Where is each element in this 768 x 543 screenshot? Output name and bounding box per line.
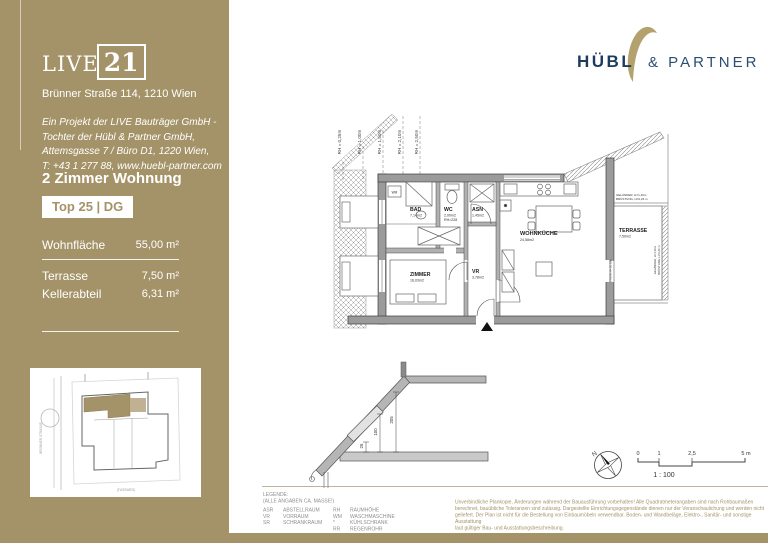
area-row-wohnflaeche: Wohnfläche 55,00 m² (42, 236, 179, 254)
room-label-wc: WC (444, 207, 453, 213)
dining-table (536, 206, 572, 232)
disclaimer-line: laut gültiger Bau- und Ausstattungsbesch… (455, 525, 767, 532)
roof-section-detail: 25 100 205 (300, 352, 490, 490)
svg-text:1: 1 (657, 451, 660, 457)
swoosh-icon (621, 16, 667, 86)
divider (42, 331, 179, 332)
railing-label-right2: BRÜSTUNG, H=0,26 m (657, 245, 661, 275)
toilet-cistern (445, 184, 459, 190)
area-value: 7,50 m² (142, 267, 179, 285)
room-label-bad: BAD (410, 207, 421, 213)
svg-text:7,50m2: 7,50m2 (619, 235, 631, 239)
svg-text:RH = 1,00m: RH = 1,00m (357, 130, 362, 155)
area-row-terrasse: Terrasse 7,50 m² (42, 267, 179, 285)
svg-text:205: 205 (389, 416, 394, 424)
unit-type-title: 2 Zimmer Wohnung (42, 170, 182, 187)
legend-column-2: RHRAUMHÖHE WMWASCHMASCHINE *KÜHLSCHRANK … (333, 508, 395, 533)
sideboard (536, 262, 552, 276)
room-label-terrasse: TERRASSE (619, 228, 648, 234)
floor-plan: RH = 0,25m RH = 1,00m RH = 1,50m RH = 2,… (326, 110, 678, 348)
svg-text:16,03m2: 16,03m2 (410, 279, 424, 283)
eave-gutter (312, 470, 317, 480)
area-label: Wohnfläche (42, 236, 105, 254)
street-label-left: BRÜNNER STRASSE (39, 422, 43, 454)
sink (504, 184, 517, 194)
brand-name-huebl: HÜBL (577, 52, 634, 72)
parapet (401, 362, 406, 377)
burner (538, 184, 543, 189)
legend: LEGENDE: (ALLE ANGABEN CA. MASSE!) ASRAB… (263, 492, 463, 532)
svg-text:RH=228: RH=228 (444, 218, 457, 222)
legend-subtitle: (ALLE ANGABEN CA. MASSE!) (263, 498, 463, 504)
svg-text:0: 0 (636, 451, 639, 457)
legend-column-1: ASRABSTELLRAUM VRVORRAUM SRSCHRANKRAUM (263, 508, 333, 533)
live21-logo: LIVE 21 (42, 44, 146, 80)
logo-21-box: 21 (97, 44, 146, 80)
divider (42, 259, 179, 260)
floor-slab (340, 452, 488, 461)
svg-text:2,5: 2,5 (688, 451, 696, 457)
tree-symbol (41, 409, 59, 427)
brochure-page: LIVE 21 Brünner Straße 114, 1210 Wien Ei… (0, 0, 768, 543)
room-label-zimmer: ZIMMER (410, 272, 431, 278)
project-address: Brünner Straße 114, 1210 Wien (42, 88, 197, 100)
site-plan-thumbnail: BRÜNNER STRASSE (FUSSWEG) (30, 368, 201, 497)
area-row-kellerabteil: Kellerabteil 6,31 m² (42, 285, 179, 303)
svg-text:1,45m2: 1,45m2 (472, 214, 484, 218)
north-label: N (592, 450, 599, 459)
disclaimer: Unverbindliche Plankopie, Änderungen wäh… (455, 499, 767, 529)
svg-text:RH = 2,50m: RH = 2,50m (414, 130, 419, 155)
room-label-asn: ASN (472, 207, 483, 213)
svg-text:RH = 0,25m: RH = 0,25m (337, 130, 342, 155)
step-label: STUFE H= 20 CM (609, 259, 613, 282)
huebl-partner-logo: HÜBL & PARTNER (575, 16, 760, 86)
svg-text:RH = 1,50m: RH = 1,50m (377, 130, 382, 155)
area-label: Kellerabteil (42, 285, 101, 303)
site-plan-drawing: BRÜNNER STRASSE (FUSSWEG) (30, 368, 201, 497)
kitchen-window (504, 176, 560, 181)
sidebar: LIVE 21 Brünner Straße 114, 1210 Wien Ei… (0, 0, 229, 543)
railing-label-top2: BRÜSTUNG, H=0,26 m (616, 197, 648, 201)
room-height-labels: RH = 0,25m RH = 1,00m RH = 1,50m RH = 2,… (337, 130, 419, 155)
roof-flat (404, 376, 486, 383)
railing-hatch (662, 206, 668, 300)
svg-text:2,00m2: 2,00m2 (444, 214, 456, 218)
developer-info: Ein Projekt der LIVE Bauträger GmbH - To… (42, 116, 222, 174)
scale-bar: 0 1 2,5 5 m 1 : 100 (636, 451, 751, 479)
fixtures (388, 182, 580, 304)
terrace: GELÄNDER, H=1,10m BRÜSTUNG, H=0,26 m GEL… (614, 134, 668, 303)
brand-name-partner: & PARTNER (648, 54, 759, 71)
area-value: 6,31 m² (142, 285, 179, 303)
svg-text:3,78m2: 3,78m2 (472, 276, 484, 280)
unit-number-badge: Top 25 | DG (42, 196, 133, 218)
roof-hatch-area (334, 170, 366, 328)
wm-label: WM (392, 191, 398, 195)
svg-text:100: 100 (373, 428, 378, 436)
north-arrow-icon: N (592, 442, 626, 483)
svg-text:5 m: 5 m (741, 451, 751, 457)
decor-line (20, 0, 21, 150)
bottom-gold-bar (0, 533, 768, 543)
toilet (447, 191, 457, 204)
footer-divider (262, 486, 768, 487)
developer-line: Tochter der Hübl & Partner GmbH, (42, 131, 222, 146)
svg-text:25: 25 (359, 443, 364, 448)
developer-line: Attemsgasse 7 / Büro D1, 1220 Wien, (42, 145, 222, 160)
highlighted-terrace (130, 398, 146, 412)
logo-live-text: LIVE (42, 52, 99, 80)
chair (528, 210, 535, 218)
room-label-vr: VR (472, 269, 479, 275)
door-openings (444, 248, 615, 325)
area-label: Terrasse (42, 267, 88, 285)
scale-ratio: 1 : 100 (653, 472, 675, 479)
area-value: 55,00 m² (136, 236, 179, 254)
svg-text:24,58m2: 24,58m2 (520, 238, 534, 242)
scale-ticks: 0 1 2,5 5 m (636, 451, 751, 457)
svg-text:RH = 2,10m: RH = 2,10m (397, 130, 402, 155)
street-label-bottom: (FUSSWEG) (117, 488, 135, 492)
room-label-wohnkueche: WOHNKÜCHE (520, 230, 558, 237)
area-table: Wohnfläche 55,00 m² Terrasse 7,50 m² Kel… (42, 236, 179, 332)
svg-text:7,14m2: 7,14m2 (410, 214, 422, 218)
developer-line: Ein Projekt der LIVE Bauträger GmbH - (42, 116, 222, 131)
disclaimer-line: geliefert. Der Plan ist nicht für die Be… (455, 512, 767, 525)
north-and-scale: N 0 1 2,5 5 m 1 : 100 (592, 442, 752, 486)
